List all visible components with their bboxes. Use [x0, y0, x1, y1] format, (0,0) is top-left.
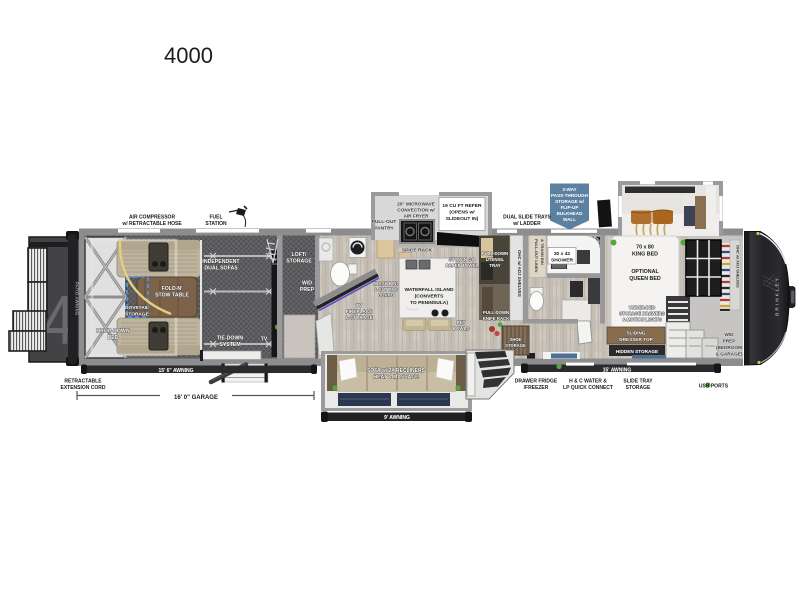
svg-text:SLIDING: SLIDING: [626, 331, 645, 336]
svg-text:FIREPLACE: FIREPLACE: [346, 309, 373, 314]
svg-text:& STORAGE: & STORAGE: [345, 315, 373, 320]
svg-text:20" MICROWAVE: 20" MICROWAVE: [397, 202, 435, 207]
svg-text:SYSTEM: SYSTEM: [219, 342, 240, 348]
svg-text:SLIDEOUT IN): SLIDEOUT IN): [446, 216, 479, 222]
svg-text:QUEEN BED: QUEEN BED: [629, 276, 661, 282]
svg-text:H & C WATER &: H & C WATER &: [569, 379, 607, 385]
svg-text:LP QUICK CONNECT: LP QUICK CONNECT: [563, 385, 613, 391]
svg-text:WALL: WALL: [563, 217, 576, 222]
svg-text:& GARAGE): & GARAGE): [716, 352, 743, 357]
svg-text:& MOTION LIGHTS: & MOTION LIGHTS: [622, 317, 661, 322]
svg-text:STOW N GO: STOW N GO: [449, 257, 476, 262]
svg-text:BRINKLEY: BRINKLEY: [775, 276, 781, 316]
svg-text:PULL-DOWN: PULL-DOWN: [483, 310, 509, 315]
svg-text:FUEL: FUEL: [209, 215, 222, 221]
svg-text:SLIDE TRAY: SLIDE TRAY: [623, 379, 653, 385]
svg-text:PANTRY: PANTRY: [374, 226, 394, 232]
svg-text:TRAY: TRAY: [489, 263, 500, 268]
svg-text:DOVETAIL: DOVETAIL: [125, 305, 149, 311]
svg-text:w/ LADDER: w/ LADDER: [512, 221, 541, 227]
svg-text:PREP: PREP: [723, 339, 736, 344]
svg-text:DUAL SOFAS: DUAL SOFAS: [204, 266, 238, 272]
svg-text:& TRASH BIN: & TRASH BIN: [540, 239, 545, 265]
svg-text:OHC w/ ADJ SHELVES: OHC w/ ADJ SHELVES: [517, 250, 522, 297]
svg-text:TV: TV: [356, 303, 363, 308]
svg-text:INDEPENDENT: INDEPENDENT: [202, 259, 240, 265]
svg-text:HEAT & MASSAGE: HEAT & MASSAGE: [374, 375, 420, 381]
svg-text:BOARD: BOARD: [378, 293, 394, 298]
svg-text:W/D: W/D: [302, 281, 312, 287]
svg-text:PATIO AWNING: PATIO AWNING: [75, 282, 80, 316]
svg-text:STORAGE: STORAGE: [286, 259, 312, 265]
svg-text:W/D: W/D: [724, 332, 734, 337]
svg-text:STATION: STATION: [205, 221, 227, 227]
svg-text:DUAL SLIDE TRAYS: DUAL SLIDE TRAYS: [503, 215, 551, 221]
svg-text:OPTIONAL: OPTIONAL: [631, 269, 659, 275]
svg-text:FOLD-N': FOLD-N': [162, 286, 183, 292]
svg-text:KNIFE RACK: KNIFE RACK: [483, 316, 510, 321]
svg-text:4000: 4000: [164, 43, 213, 68]
svg-text:3-WAY: 3-WAY: [562, 187, 576, 192]
svg-text:w/ RETRACTABLE HOSE: w/ RETRACTABLE HOSE: [121, 221, 182, 227]
svg-text:PREP: PREP: [300, 287, 315, 293]
svg-text:WATERFALL ISLAND: WATERFALL ISLAND: [405, 287, 454, 293]
svg-text:SHOWER: SHOWER: [551, 258, 573, 264]
svg-text:UTENSIL: UTENSIL: [486, 257, 505, 262]
svg-text:DRESSER TOP: DRESSER TOP: [619, 337, 653, 342]
svg-text:CONVECTION w/: CONVECTION w/: [397, 208, 435, 213]
svg-text:BED: BED: [108, 335, 119, 341]
svg-text:(OPENS w/: (OPENS w/: [449, 210, 475, 216]
svg-text:& CUTTING: & CUTTING: [374, 287, 398, 292]
svg-text:PAPER TOWEL: PAPER TOWEL: [446, 263, 479, 268]
svg-text:16' 0" GARAGE: 16' 0" GARAGE: [174, 395, 218, 401]
svg-text:PET: PET: [457, 320, 466, 325]
svg-text:KING BED: KING BED: [632, 252, 658, 258]
svg-text:OHC w/ ADJ SHELVES: OHC w/ ADJ SHELVES: [736, 245, 741, 288]
svg-text:DROP-DOWN: DROP-DOWN: [96, 329, 129, 335]
svg-text:STORAGE: STORAGE: [505, 343, 526, 348]
svg-text:BULKHEAD: BULKHEAD: [557, 211, 583, 216]
svg-text:TRASH BINS: TRASH BINS: [373, 281, 400, 286]
svg-text:(BEDROOM: (BEDROOM: [716, 345, 742, 350]
svg-text:DRAWER FRIDGE: DRAWER FRIDGE: [515, 379, 558, 385]
svg-text:PULL-OUT: PULL-OUT: [372, 219, 397, 225]
svg-text:USB PORTS: USB PORTS: [699, 383, 729, 389]
svg-text:FLIP-UP: FLIP-UP: [561, 205, 579, 210]
svg-text:LOFT/: LOFT/: [292, 252, 308, 258]
svg-text:(CONVERTS: (CONVERTS: [415, 294, 445, 300]
svg-text:PULL-DOWN: PULL-DOWN: [482, 251, 508, 256]
svg-text:70 x 80: 70 x 80: [636, 245, 654, 251]
svg-text:AIR FRYER: AIR FRYER: [403, 214, 429, 219]
svg-text:30 x 42: 30 x 42: [554, 251, 571, 257]
svg-text:PULL-OUT LINEN: PULL-OUT LINEN: [534, 239, 539, 272]
svg-text:TV: TV: [261, 337, 268, 343]
svg-text:AIR COMPRESSOR: AIR COMPRESSOR: [129, 215, 176, 221]
svg-text:STOW TABLE: STOW TABLE: [155, 293, 189, 299]
svg-text:TO PENINSULA): TO PENINSULA): [410, 300, 448, 306]
svg-text:19 CU FT REFER: 19 CU FT REFER: [442, 203, 482, 209]
svg-text:15' AWNING: 15' AWNING: [603, 367, 632, 373]
svg-text:RETRACTABLE: RETRACTABLE: [64, 379, 102, 385]
svg-text:SOFA w/ 2X RECLINERS: SOFA w/ 2X RECLINERS: [367, 368, 426, 374]
svg-text:15' 6" AWNING: 15' 6" AWNING: [158, 368, 193, 374]
svg-text:BOWLS: BOWLS: [453, 326, 470, 331]
svg-text:PASS-THROUGH: PASS-THROUGH: [551, 193, 589, 198]
svg-text:EXTENSION CORD: EXTENSION CORD: [60, 385, 105, 391]
svg-text:HIDDEN STORAGE: HIDDEN STORAGE: [616, 349, 658, 354]
svg-text:STORAGE: STORAGE: [125, 312, 149, 318]
svg-text:UNDER-BED: UNDER-BED: [629, 305, 655, 310]
svg-text:STORAGE w/: STORAGE w/: [555, 199, 584, 204]
svg-text:/FREEZER: /FREEZER: [524, 385, 549, 391]
svg-text:STORAGE: STORAGE: [626, 385, 651, 391]
svg-text:STORAGE DRAWERS: STORAGE DRAWERS: [619, 311, 664, 316]
svg-text:TIE-DOWN: TIE-DOWN: [217, 336, 243, 342]
svg-text:SHOE: SHOE: [510, 337, 522, 342]
svg-text:9' AWNING: 9' AWNING: [384, 415, 410, 421]
